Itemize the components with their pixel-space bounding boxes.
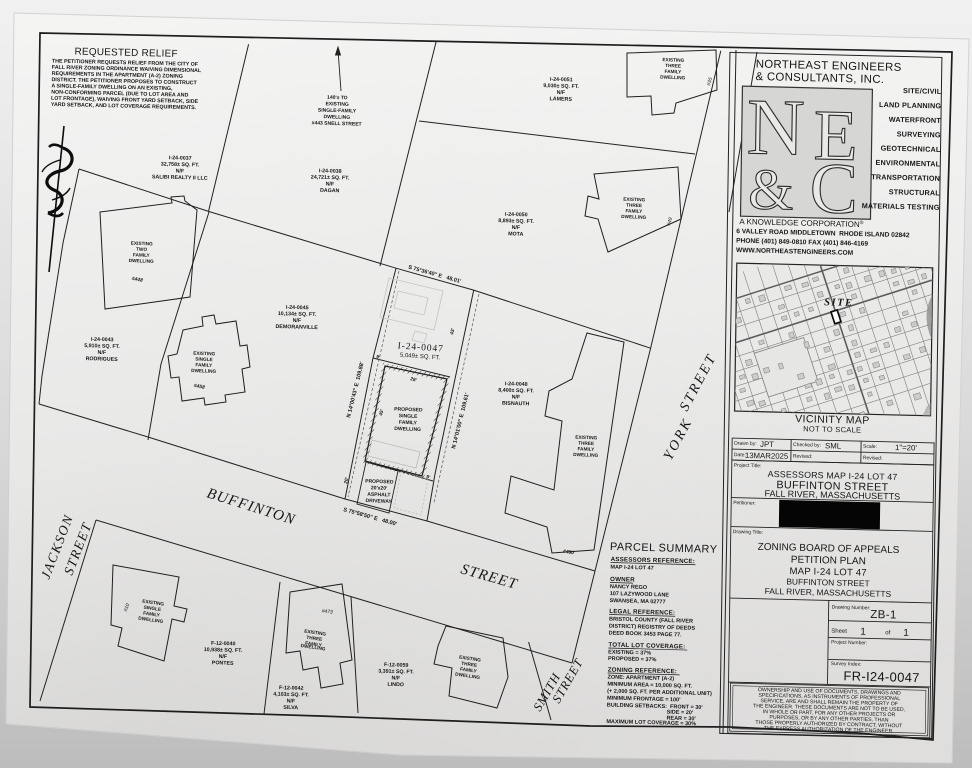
- svg-text:NANCY REGO: NANCY REGO: [610, 584, 648, 591]
- svg-text:13MAR2025: 13MAR2025: [745, 451, 789, 461]
- svg-text:SITE/CIVIL: SITE/CIVIL: [903, 86, 942, 96]
- svg-text:MOTA: MOTA: [508, 231, 524, 237]
- svg-text:FAMILY: FAMILY: [625, 208, 643, 214]
- svg-text:DEMORANVILLE: DEMORANVILLE: [275, 324, 318, 331]
- svg-text:SML: SML: [825, 441, 842, 450]
- svg-text:MAP I-24 LOT 47: MAP I-24 LOT 47: [610, 565, 653, 572]
- svg-text:REQUESTED RELIEF: REQUESTED RELIEF: [74, 47, 177, 60]
- svg-text:EXISTING: EXISTING: [575, 435, 597, 441]
- svg-text:N/F: N/F: [97, 350, 106, 356]
- svg-text:MATERIALS TESTING: MATERIALS TESTING: [862, 201, 940, 212]
- svg-text:Drawing Title:: Drawing Title:: [733, 529, 763, 536]
- svg-text:EXISTING: EXISTING: [623, 197, 645, 203]
- svg-text:DAGAN: DAGAN: [320, 188, 340, 195]
- svg-text:10,134± SQ. FT.: 10,134± SQ. FT.: [278, 311, 317, 318]
- svg-text:4,103± SQ. FT.: 4,103± SQ. FT.: [273, 692, 309, 699]
- svg-text:N/F: N/F: [176, 168, 185, 174]
- svg-text:N/F: N/F: [293, 318, 302, 324]
- svg-text:N/F: N/F: [287, 698, 296, 704]
- svg-text:of: of: [885, 630, 890, 636]
- svg-text:PROPOSED: PROPOSED: [365, 479, 394, 486]
- svg-text:N/F: N/F: [557, 90, 566, 96]
- svg-text:8,893± SQ. FT.: 8,893± SQ. FT.: [498, 218, 534, 225]
- svg-text:140'± TO: 140'± TO: [327, 95, 348, 102]
- svg-text:FR-I24-0047: FR-I24-0047: [843, 668, 919, 685]
- svg-text:RODRIGUES: RODRIGUES: [86, 356, 119, 363]
- svg-text:1: 1: [903, 628, 909, 639]
- svg-text:FAMILY: FAMILY: [577, 446, 595, 452]
- svg-text:Project Number:: Project Number:: [831, 639, 867, 646]
- svg-text:PROPOSED = 37%: PROPOSED = 37%: [608, 656, 657, 663]
- svg-text:SILVA: SILVA: [283, 705, 298, 711]
- svg-text:N/F: N/F: [326, 181, 335, 187]
- svg-text:NOT TO SCALE: NOT TO SCALE: [803, 424, 861, 434]
- svg-text:Drawing Number:: Drawing Number:: [832, 604, 871, 611]
- svg-text:&: &: [748, 156, 794, 222]
- svg-text:Sheet: Sheet: [831, 628, 847, 634]
- svg-text:TWO: TWO: [136, 247, 147, 252]
- svg-text:PONTES: PONTES: [212, 660, 234, 667]
- svg-text:FAMILY: FAMILY: [195, 362, 213, 368]
- svg-text:Revised:: Revised:: [863, 455, 883, 461]
- svg-text:3,391± SQ. FT.: 3,391± SQ. FT.: [378, 669, 414, 676]
- svg-text:SINGLE: SINGLE: [195, 356, 213, 362]
- svg-text:THREE: THREE: [665, 63, 681, 69]
- svg-text:5,910± SQ. FT.: 5,910± SQ. FT.: [84, 343, 120, 350]
- svg-text:DWELLING: DWELLING: [621, 214, 647, 220]
- svg-text:32,758± SQ. FT.: 32,758± SQ. FT.: [161, 161, 200, 168]
- svg-text:DWELLING: DWELLING: [660, 74, 686, 80]
- svg-text:LAND PLANNING: LAND PLANNING: [879, 100, 941, 110]
- svg-text:Drawn by:: Drawn by:: [734, 441, 757, 448]
- svg-text:N/F: N/F: [219, 654, 228, 660]
- svg-text:DWELLING: DWELLING: [129, 258, 155, 264]
- svg-text:20'x20': 20'x20': [371, 485, 387, 492]
- svg-text:Scale:: Scale:: [863, 444, 877, 450]
- svg-text:LAMERS: LAMERS: [549, 96, 572, 103]
- svg-text:C: C: [809, 148, 858, 229]
- svg-text:SITE: SITE: [824, 297, 853, 309]
- svg-text:Revised:: Revised:: [793, 454, 813, 460]
- svg-text:EXISTING: EXISTING: [662, 57, 684, 63]
- svg-text:N/F: N/F: [512, 394, 521, 400]
- svg-text:EXISTING: EXISTING: [131, 241, 153, 247]
- svg-text:N/F: N/F: [392, 675, 401, 681]
- svg-text:JPT: JPT: [760, 440, 774, 449]
- svg-text:Checked by:: Checked by:: [793, 442, 821, 449]
- svg-text:DWELLING: DWELLING: [394, 426, 421, 433]
- svg-text:24,721± SQ. FT.: 24,721± SQ. FT.: [311, 174, 350, 181]
- svg-text:Petitioner:: Petitioner:: [733, 500, 756, 507]
- svg-text:N/F: N/F: [512, 225, 521, 231]
- svg-text:ENVIRONMENTAL: ENVIRONMENTAL: [875, 158, 940, 169]
- svg-text:TRANSPORTATION: TRANSPORTATION: [871, 172, 940, 183]
- svg-text:BISNAUTH: BISNAUTH: [502, 401, 530, 408]
- svg-text:EXISTING: EXISTING: [193, 351, 215, 357]
- svg-text:THREE: THREE: [626, 203, 642, 209]
- svg-text:9,030± SQ. FT.: 9,030± SQ. FT.: [543, 83, 579, 90]
- svg-text:ZB-1: ZB-1: [870, 609, 897, 622]
- svg-text:STRUCTURAL: STRUCTURAL: [889, 187, 941, 197]
- svg-text:DWELLING: DWELLING: [573, 452, 599, 458]
- svg-text:GEOTECHNICAL: GEOTECHNICAL: [881, 144, 941, 154]
- svg-text:FAMILY: FAMILY: [664, 69, 682, 75]
- svg-text:1"=20': 1"=20': [895, 443, 917, 453]
- svg-text:DRIVEWAY: DRIVEWAY: [365, 498, 392, 505]
- svg-text:SURVEYING: SURVEYING: [897, 129, 941, 139]
- svg-text:1: 1: [860, 627, 866, 638]
- svg-text:LINDO: LINDO: [387, 682, 404, 688]
- svg-text:8,400± SQ. FT.: 8,400± SQ. FT.: [498, 388, 534, 395]
- svg-text:DWELLING: DWELLING: [191, 368, 217, 374]
- svg-text:WATERFRONT: WATERFRONT: [889, 115, 942, 125]
- svg-text:Survey Index:: Survey Index:: [831, 661, 862, 668]
- svg-text:FAMILY: FAMILY: [133, 252, 151, 258]
- svg-text:10,938± SQ. FT.: 10,938± SQ. FT.: [204, 647, 243, 654]
- svg-text:THREE: THREE: [578, 441, 594, 447]
- svg-text:Project Title:: Project Title:: [734, 463, 762, 470]
